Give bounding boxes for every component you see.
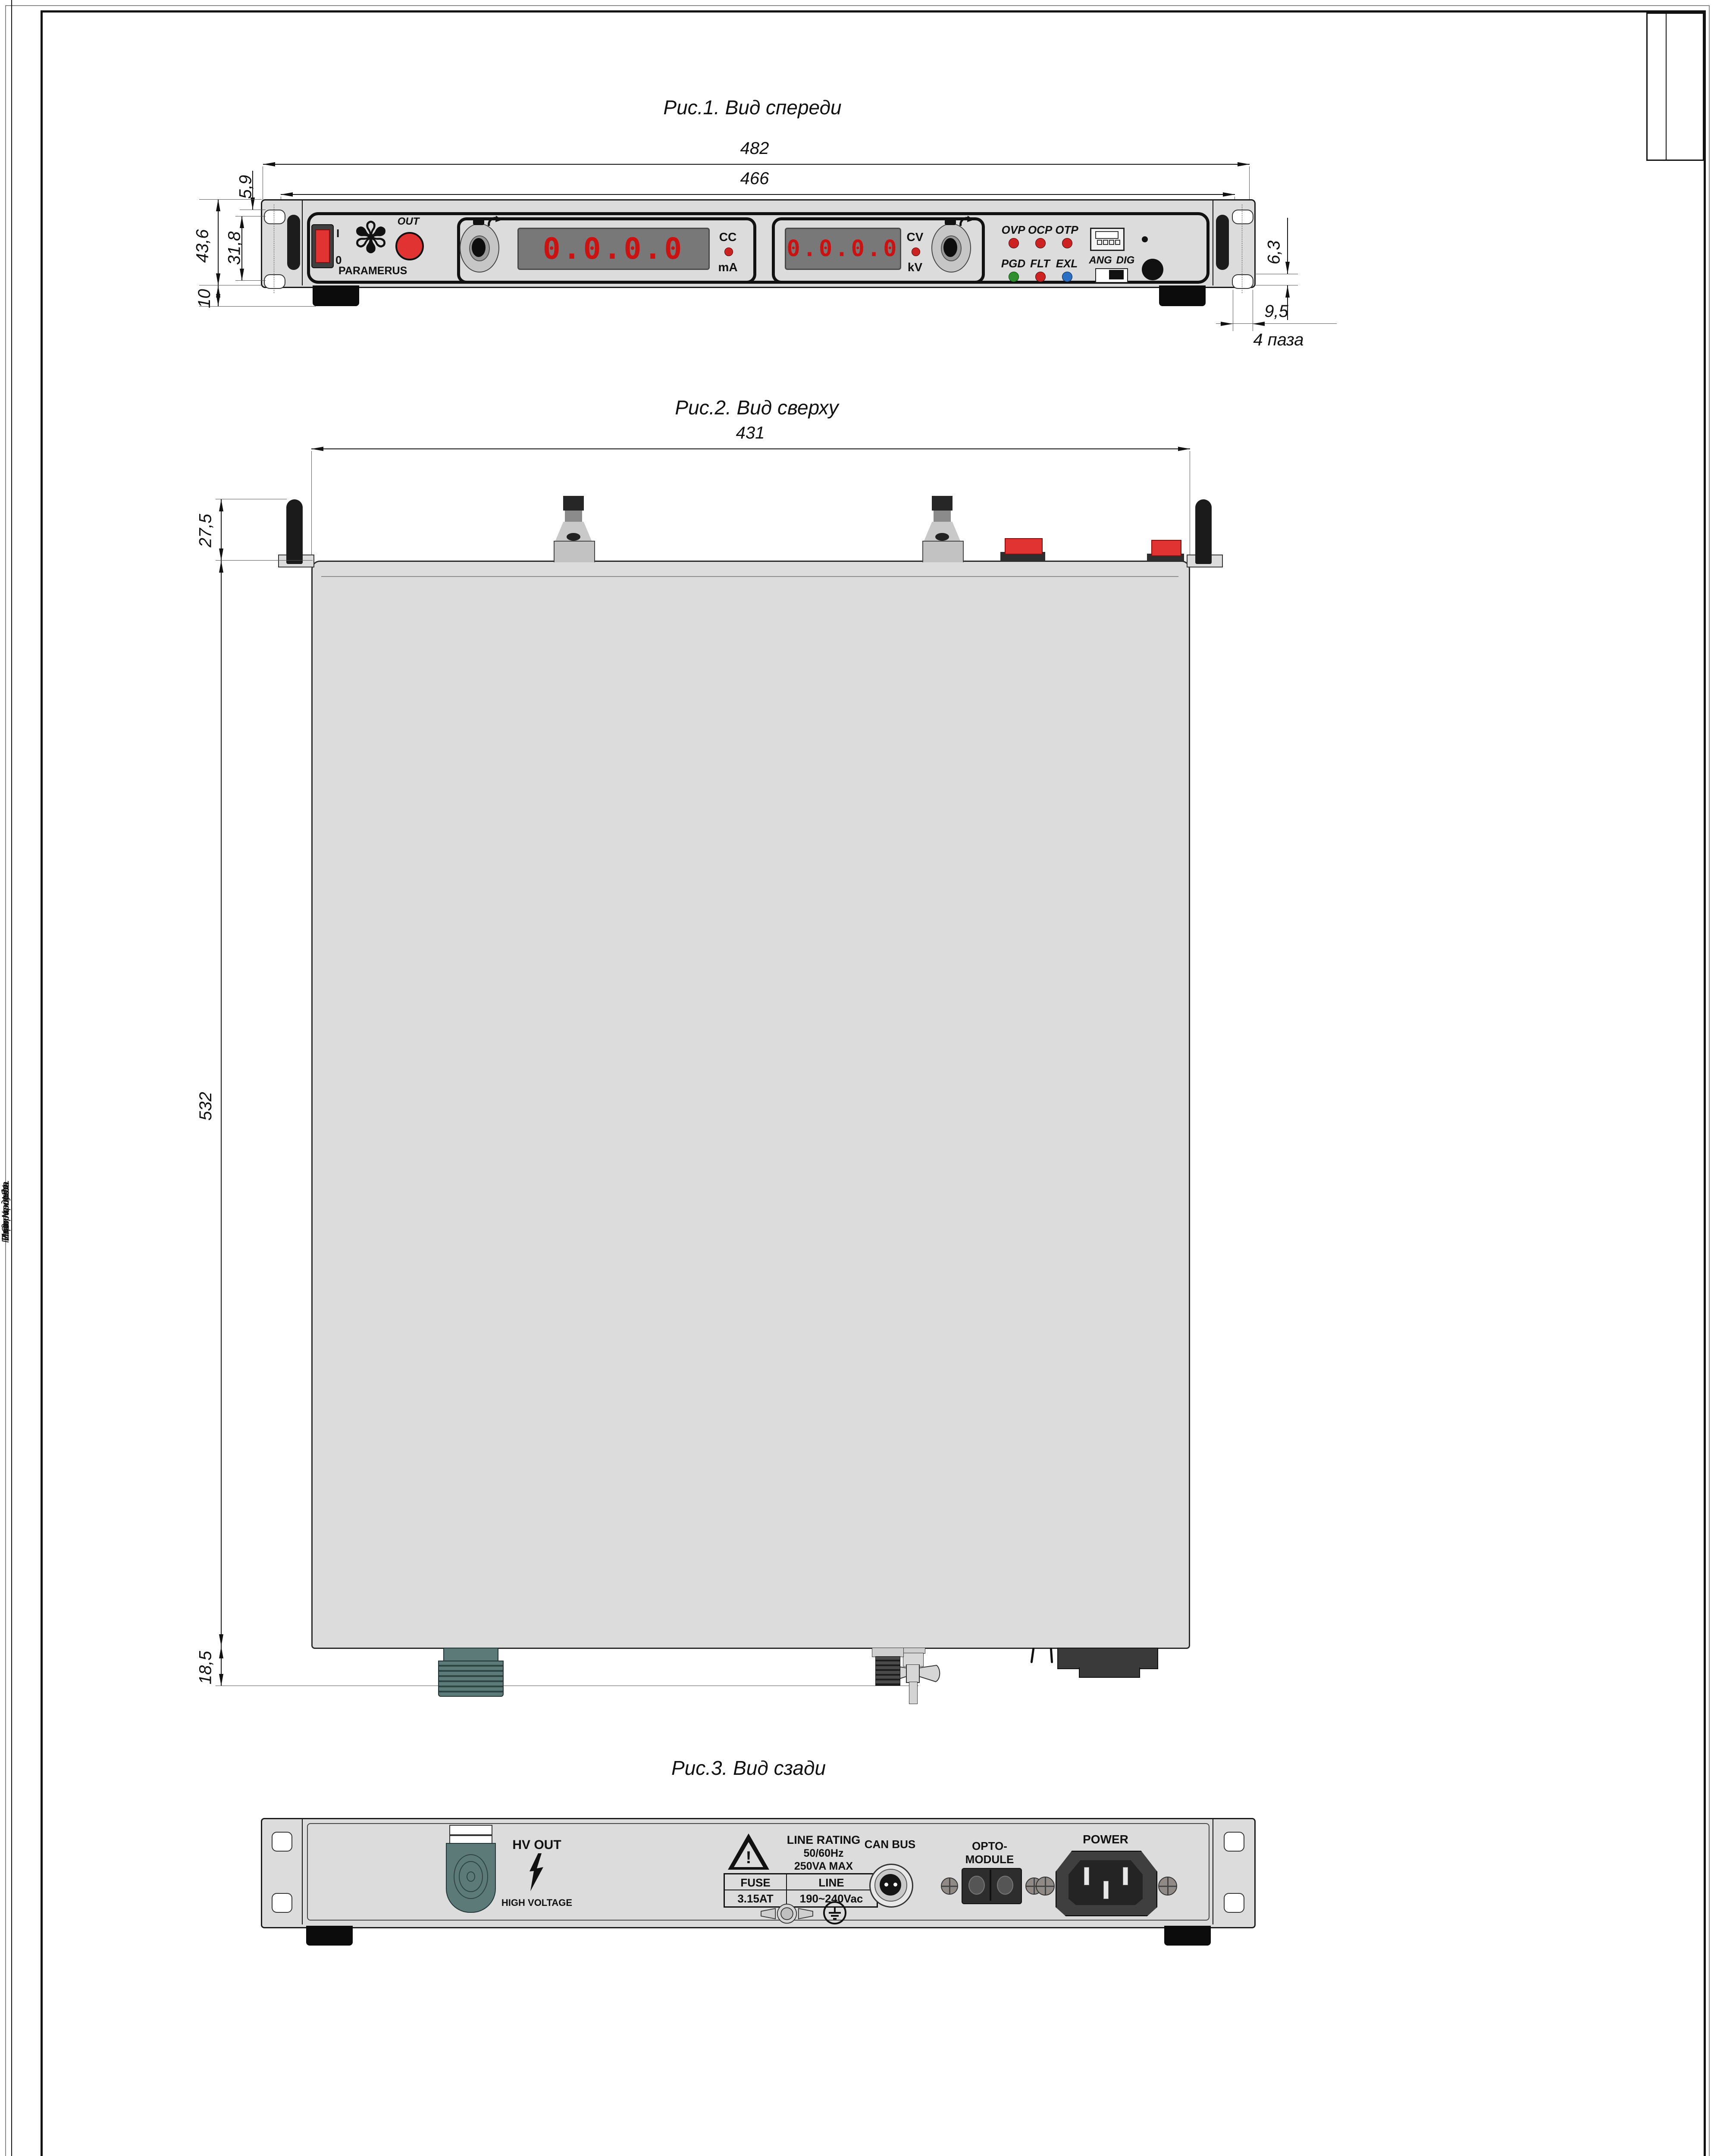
otp-led: [1062, 238, 1072, 248]
screw: [941, 1877, 958, 1895]
handle-slot: [287, 215, 300, 270]
chassis-seam: [321, 576, 1178, 577]
otp-led-label: OTP: [1054, 223, 1080, 237]
current-knob-tab: [473, 219, 484, 225]
ear-hole: [1224, 1832, 1244, 1852]
fuse-line-table: FUSE LINE 3.15AT 190~240Vac: [724, 1873, 878, 1908]
exl-led: [1062, 272, 1072, 282]
usb-pin: [1097, 240, 1102, 245]
ocp-led-label: OCP: [1027, 223, 1053, 237]
dim-431-label: 431: [716, 423, 785, 443]
ang-mode-label: ANG: [1088, 254, 1112, 266]
ear-centerline: [274, 204, 274, 293]
power-prong: [1084, 1867, 1089, 1885]
ear-hole: [1232, 210, 1253, 224]
usb-pin: [1103, 240, 1108, 245]
button-profile-red: [1151, 540, 1181, 556]
brand-label: PARAMERUS: [338, 265, 403, 277]
switch-profile-red: [1005, 538, 1043, 555]
flt-led-label: FLT: [1027, 257, 1053, 270]
ovp-led: [1009, 238, 1019, 248]
hv-connector-cap: [449, 1825, 492, 1835]
voltage-knob-center: [943, 238, 957, 257]
ocp-led: [1035, 238, 1046, 248]
power-inlet-block: [1057, 1648, 1158, 1669]
foot: [313, 285, 359, 306]
opto-port: [968, 1876, 985, 1895]
ear-hole: [1232, 274, 1253, 289]
rack-handle: [1195, 499, 1212, 564]
status-hole: [1142, 236, 1148, 242]
knob-profile-dot: [935, 533, 949, 541]
flt-led: [1035, 272, 1046, 282]
knob-profile-neck: [934, 511, 951, 522]
high-voltage-label: HIGH VOLTAGE: [496, 1897, 578, 1908]
dim-275-label: 27,5: [196, 509, 215, 552]
usb-port-tongue: [1095, 231, 1119, 239]
strip-label: Инв. № подл.: [0, 1182, 11, 1241]
line-header: LINE: [787, 1876, 876, 1890]
hv-connector-cap: [449, 1835, 492, 1844]
foot: [1164, 1926, 1211, 1946]
dim-532-label: 532: [196, 1082, 215, 1130]
screw: [1158, 1877, 1177, 1896]
knob-profile-base: [922, 541, 964, 562]
front-panel-bezel: [307, 212, 1210, 284]
cv-mode-label: CV: [903, 230, 927, 244]
corner-box: [1646, 13, 1704, 161]
ovp-led-label: OVP: [1000, 223, 1026, 237]
hv-gland-collar: [443, 1648, 498, 1662]
slide-switch-knob: [1109, 270, 1124, 279]
voltage-display-value: 0.0.0.0: [786, 236, 899, 262]
can-connector-collar: [872, 1648, 904, 1657]
knob-profile-base: [554, 541, 595, 562]
drawing-sheet: Перв. примен. Справ. № Подп. и дата Инв.…: [0, 0, 1714, 2156]
lightning-bolt-icon: [527, 1853, 546, 1893]
current-display: 0.0.0.0: [517, 228, 710, 270]
ear-hole: [272, 1893, 292, 1913]
screw: [1036, 1877, 1055, 1896]
foot: [306, 1926, 353, 1946]
dig-mode-label: DIG: [1113, 254, 1137, 266]
dim-482-label: 482: [711, 139, 798, 158]
pgd-led: [1009, 272, 1019, 282]
power-switch-rocker[interactable]: [315, 229, 330, 263]
ear-hole: [1224, 1893, 1244, 1913]
opto-module-label: OPTO-MODULE: [949, 1839, 1031, 1866]
dim-466-label: 466: [711, 169, 798, 188]
brand-logo-icon: ✾: [345, 216, 397, 260]
wing-screw-rear: [759, 1903, 815, 1924]
can-pin: [884, 1883, 888, 1887]
dim-436-label: 43,6: [193, 220, 212, 272]
chassis-top-view: [311, 561, 1190, 1649]
ear-hole: [264, 210, 285, 224]
can-pin: [893, 1883, 897, 1887]
usb-pin: [1115, 240, 1120, 245]
hv-connector-pin: [467, 1871, 475, 1882]
knob-profile-cap: [932, 496, 953, 511]
usb-pin: [1109, 240, 1114, 245]
knob-profile-cap: [563, 496, 584, 511]
figure3-caption: Рис.3. Вид сзади: [619, 1756, 878, 1780]
ground-screw-stem: [909, 1682, 918, 1704]
cc-mode-label: CC: [716, 230, 740, 244]
voltage-display: 0.0.0.0: [785, 228, 901, 270]
can-connector-thread: [875, 1656, 900, 1686]
rotate-arrow-icon: [959, 216, 974, 229]
dim-185-label: 18,5: [196, 1649, 215, 1686]
power-switch-on-label: I: [336, 227, 339, 240]
cc-led: [724, 248, 733, 256]
can-bus-label: CAN BUS: [855, 1838, 924, 1851]
dim-95-label: 9,5: [1246, 302, 1307, 321]
dim-4paza-note: 4 паза: [1238, 330, 1319, 350]
opto-port: [997, 1876, 1013, 1895]
dim-10-label: 10: [195, 285, 214, 311]
ear-hole: [264, 274, 285, 289]
out-button[interactable]: [395, 232, 424, 260]
figure2-caption: Рис.2. Вид сверху: [627, 396, 886, 419]
handle-slot: [1216, 215, 1229, 270]
rack-handle: [286, 499, 303, 564]
can-connector-face: [880, 1874, 901, 1896]
dim-63-label: 6,3: [1263, 233, 1285, 272]
corner-box-divider: [1666, 14, 1667, 160]
power-inlet-step: [1079, 1667, 1140, 1678]
current-knob-center: [472, 238, 486, 257]
ear-hole: [272, 1832, 292, 1852]
kv-unit-label: kV: [903, 260, 927, 274]
warning-mark: !: [740, 1848, 757, 1868]
power-prong: [1103, 1881, 1109, 1899]
power-label: POWER: [1075, 1833, 1136, 1846]
opto-divider: [990, 1870, 991, 1901]
knob-profile-neck: [565, 511, 582, 522]
ear-centerline: [1242, 204, 1242, 293]
exl-led-label: EXL: [1054, 257, 1080, 270]
line-rating-line3: 250VA MAX: [776, 1860, 871, 1873]
hv-out-label: HV OUT: [504, 1838, 569, 1852]
fuse-header: FUSE: [725, 1876, 786, 1890]
out-button-label: OUT: [393, 216, 423, 228]
pgd-led-label: PGD: [1000, 257, 1026, 270]
rotate-arrow-icon: [487, 216, 502, 229]
power-prong: [1123, 1867, 1128, 1885]
foot: [1159, 285, 1206, 306]
hv-gland-thread: [438, 1661, 504, 1697]
cv-led: [912, 248, 920, 256]
ma-unit-label: mA: [716, 260, 740, 274]
ground-symbol-icon: [823, 1901, 847, 1925]
current-display-value: 0.0.0.0: [543, 232, 685, 266]
round-button[interactable]: [1142, 259, 1163, 280]
voltage-knob-tab: [945, 219, 956, 225]
figure1-caption: Рис.1. Вид спереди: [623, 96, 882, 119]
knob-profile-dot: [567, 533, 580, 541]
